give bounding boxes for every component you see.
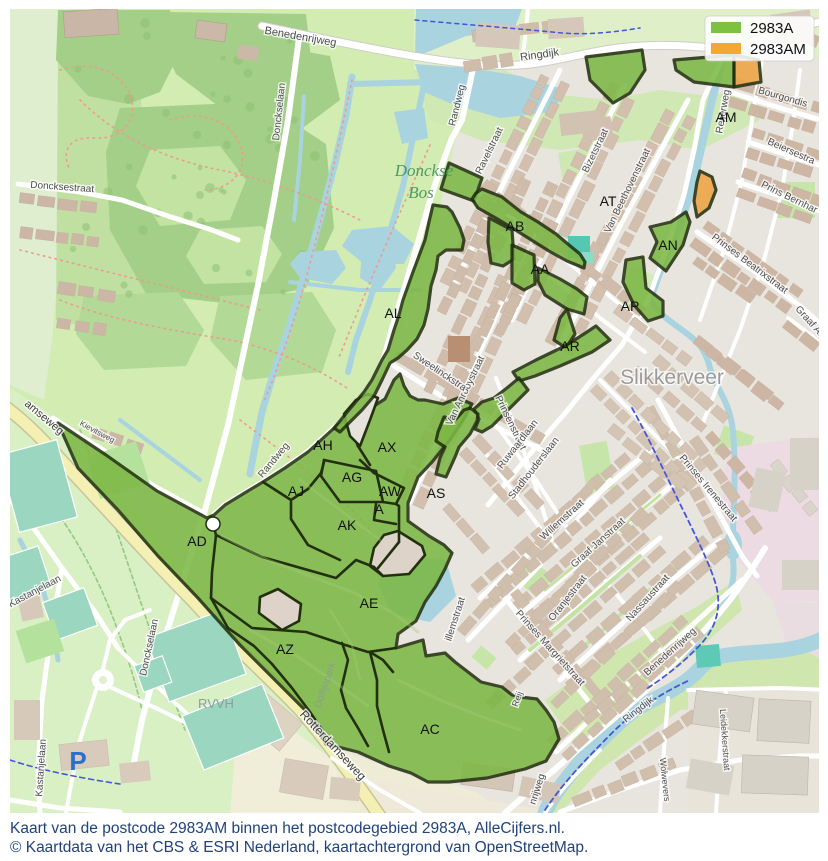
svg-text:Kaart van de postcode 2983AM b: Kaart van de postcode 2983AM binnen het … xyxy=(10,820,565,837)
svg-text:AE: AE xyxy=(360,595,379,611)
svg-text:AW: AW xyxy=(379,483,402,499)
svg-text:Bos: Bos xyxy=(408,183,434,202)
svg-text:2983A: 2983A xyxy=(750,20,793,37)
svg-text:P: P xyxy=(69,746,86,776)
svg-text:AP: AP xyxy=(621,298,640,314)
svg-text:AT: AT xyxy=(600,193,617,209)
svg-text:RVVH: RVVH xyxy=(198,696,234,711)
svg-text:AH: AH xyxy=(313,437,332,453)
svg-text:Donckse: Donckse xyxy=(394,161,454,180)
svg-text:© Kaartdata van het CBS & ESRI: © Kaartdata van het CBS & ESRI Nederland… xyxy=(10,839,588,856)
svg-text:Slikkerveer: Slikkerveer xyxy=(620,366,724,389)
svg-text:AM: AM xyxy=(716,109,737,125)
svg-text:2983AM: 2983AM xyxy=(750,41,806,58)
svg-text:AL: AL xyxy=(384,305,401,321)
svg-text:AK: AK xyxy=(338,517,357,533)
svg-text:AX: AX xyxy=(378,439,397,455)
svg-text:AZ: AZ xyxy=(276,641,294,657)
svg-text:AA: AA xyxy=(531,261,550,277)
svg-text:AJ: AJ xyxy=(288,483,304,499)
svg-text:AB: AB xyxy=(506,218,525,234)
svg-text:AN: AN xyxy=(658,237,677,253)
svg-text:AS: AS xyxy=(427,485,446,501)
svg-text:A: A xyxy=(374,501,384,517)
svg-text:AG: AG xyxy=(342,469,362,485)
svg-text:AD: AD xyxy=(187,533,206,549)
svg-text:AC: AC xyxy=(420,721,439,737)
svg-text:AR: AR xyxy=(560,338,579,354)
